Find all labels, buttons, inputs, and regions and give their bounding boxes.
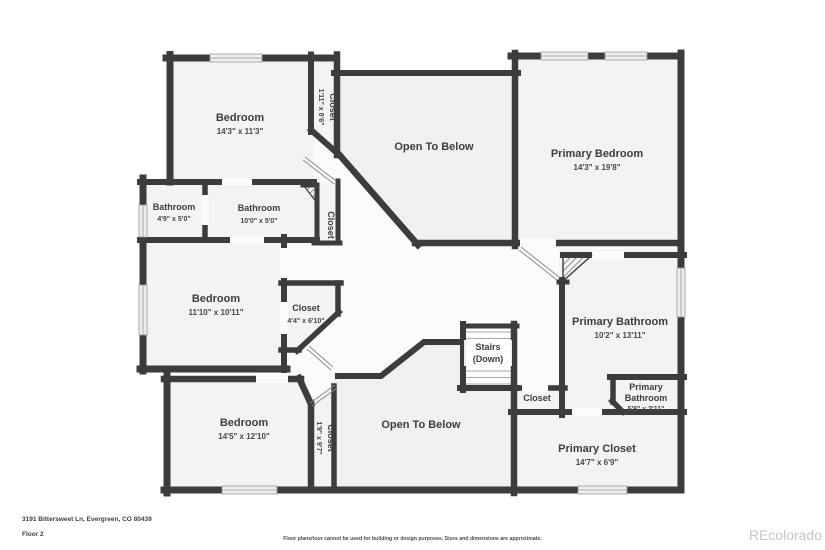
room-label-closet1: Closet — [328, 93, 338, 121]
room-label-open1: Open To Below — [394, 141, 474, 153]
room-dims-bedroom1: 14'3" x 11'3" — [217, 127, 264, 136]
room-label-primary-bedroom: Primary Bedroom — [551, 148, 644, 160]
room-label-bedroom3: Bedroom — [220, 417, 269, 429]
room-dims-primary-closet: 14'7" x 6'9" — [576, 458, 619, 467]
room-label-closet3: Closet — [292, 303, 320, 313]
room-label-primary-bathroom2-line1: Primary — [629, 382, 663, 392]
room-dims-primary-bedroom: 14'3" x 19'8" — [574, 163, 621, 172]
room-label-closet4: Closet — [326, 424, 336, 452]
room-dims-closet1: 1'11" x 8'6" — [317, 89, 324, 126]
room-label-closet2: Closet — [326, 211, 336, 239]
stairs-label-line2: (Down) — [473, 354, 504, 364]
room-dims-closet3: 4'4" x 6'10" — [287, 318, 324, 325]
room-label-bathroom1: Bathroom — [153, 202, 196, 212]
stairs-label-line1: Stairs — [475, 342, 500, 352]
room-dims-closet4: 1'9" x 9'7" — [315, 421, 322, 454]
disclaimer-text: Floor plans/tour cannot be used for buil… — [0, 536, 825, 542]
room-dims-primary-bathroom2: 5'8" x 2'11" — [628, 406, 665, 413]
room-label-primary-bathroom2-line2: Bathroom — [625, 393, 668, 403]
room-label-bedroom2: Bedroom — [192, 293, 241, 305]
room-label-closet5: Closet — [523, 393, 551, 403]
address-text: 3191 Bittersweet Ln, Evergreen, CO 80439 — [22, 516, 152, 523]
room-dims-bedroom3: 14'5" x 12'10" — [218, 432, 270, 441]
floorplan-drawing: Bedroom 14'3" x 11'3" Closet 1'11" x 8'6… — [0, 0, 825, 550]
room-label-primary-bathroom: Primary Bathroom — [572, 316, 668, 328]
recolorado-watermark: REcolorado — [749, 527, 822, 543]
room-dims-primary-bathroom: 10'2" x 13'11" — [595, 331, 646, 340]
room-label-open2: Open To Below — [381, 419, 461, 431]
room-dims-bedroom2: 11'10" x 10'11" — [189, 308, 244, 317]
room-label-bedroom1: Bedroom — [216, 112, 265, 124]
room-dims-bathroom2: 10'0" x 5'0" — [240, 218, 277, 225]
room-label-bathroom2: Bathroom — [238, 203, 281, 213]
floorplan-page: Bedroom 14'3" x 11'3" Closet 1'11" x 8'6… — [0, 0, 825, 550]
room-label-primary-closet: Primary Closet — [558, 443, 636, 455]
room-dims-bathroom1: 4'9" x 5'0" — [157, 216, 190, 223]
